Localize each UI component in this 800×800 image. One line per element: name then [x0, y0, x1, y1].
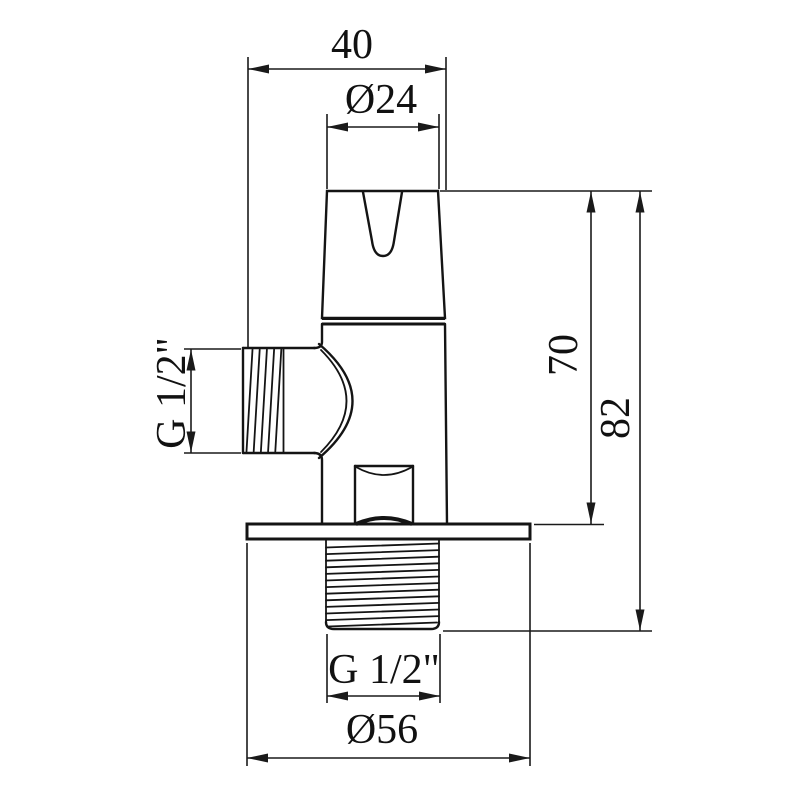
arrowhead-right [509, 754, 530, 763]
arrowhead-left [248, 65, 269, 74]
thread-ridge [326, 616, 439, 620]
arrowhead-right [425, 65, 446, 74]
dim-label-height-body: 70 [541, 334, 587, 376]
side-thread-line [254, 350, 260, 452]
valve-technical-drawing: 40 Ø24 70 82 G 1/2" [0, 0, 800, 800]
arrowhead-left [327, 123, 348, 132]
thread-ridge [326, 583, 439, 587]
arrowhead-bottom [636, 610, 645, 631]
dim-label-height-total: 82 [593, 397, 639, 439]
dim-height-total: 82 [443, 191, 652, 631]
arrowhead-bottom [587, 503, 596, 524]
mounting-flange [247, 524, 530, 539]
side-thread-lines [247, 350, 282, 452]
dim-label-top-width: 40 [331, 22, 373, 68]
side-thread-line [268, 350, 274, 452]
bottom-thread-ridges [326, 544, 439, 627]
arrowhead-left [247, 754, 268, 763]
valve-body-drawing [243, 191, 530, 629]
arrowhead-top [636, 192, 645, 213]
dim-label-flange-diameter: Ø56 [346, 707, 418, 753]
dim-height-body: 70 [534, 191, 604, 525]
thread-ridge [326, 557, 439, 561]
arrowhead-right [418, 123, 439, 132]
thread-ridge [326, 544, 439, 548]
drawing-canvas: 40 Ø24 70 82 G 1/2" [0, 0, 800, 800]
side-thread-line [261, 350, 267, 452]
thread-ridge [326, 596, 439, 600]
neck-top-concave-curve [356, 467, 412, 475]
dim-label-bottom-thread: G 1/2" [328, 647, 440, 693]
bottom-thread [326, 540, 439, 629]
valve-handle [322, 191, 445, 318]
dim-label-side-thread: G 1/2" [149, 337, 195, 449]
thread-ridge [326, 610, 439, 614]
thread-ridge [326, 570, 439, 574]
side-thread-line [247, 350, 253, 452]
arrowhead-top [587, 192, 596, 213]
thread-ridge [326, 603, 439, 607]
outlet-dome-inner-arc [321, 350, 347, 452]
thread-ridge [326, 590, 439, 594]
side-thread-line [275, 350, 281, 452]
dim-bottom-thread: G 1/2" [327, 634, 440, 703]
valve-body-right-edge [445, 324, 447, 524]
valve-body-left-edge-lower [314, 453, 322, 524]
thread-ridge [326, 563, 439, 567]
outlet-dome-outer-arc [319, 344, 353, 458]
thread-ridge [326, 577, 439, 581]
dim-label-handle-diameter: Ø24 [345, 77, 417, 123]
dim-handle-diameter: Ø24 [327, 77, 439, 189]
dim-side-thread: G 1/2" [149, 337, 241, 453]
thread-ridge [328, 623, 437, 627]
thread-ridge [326, 550, 439, 554]
